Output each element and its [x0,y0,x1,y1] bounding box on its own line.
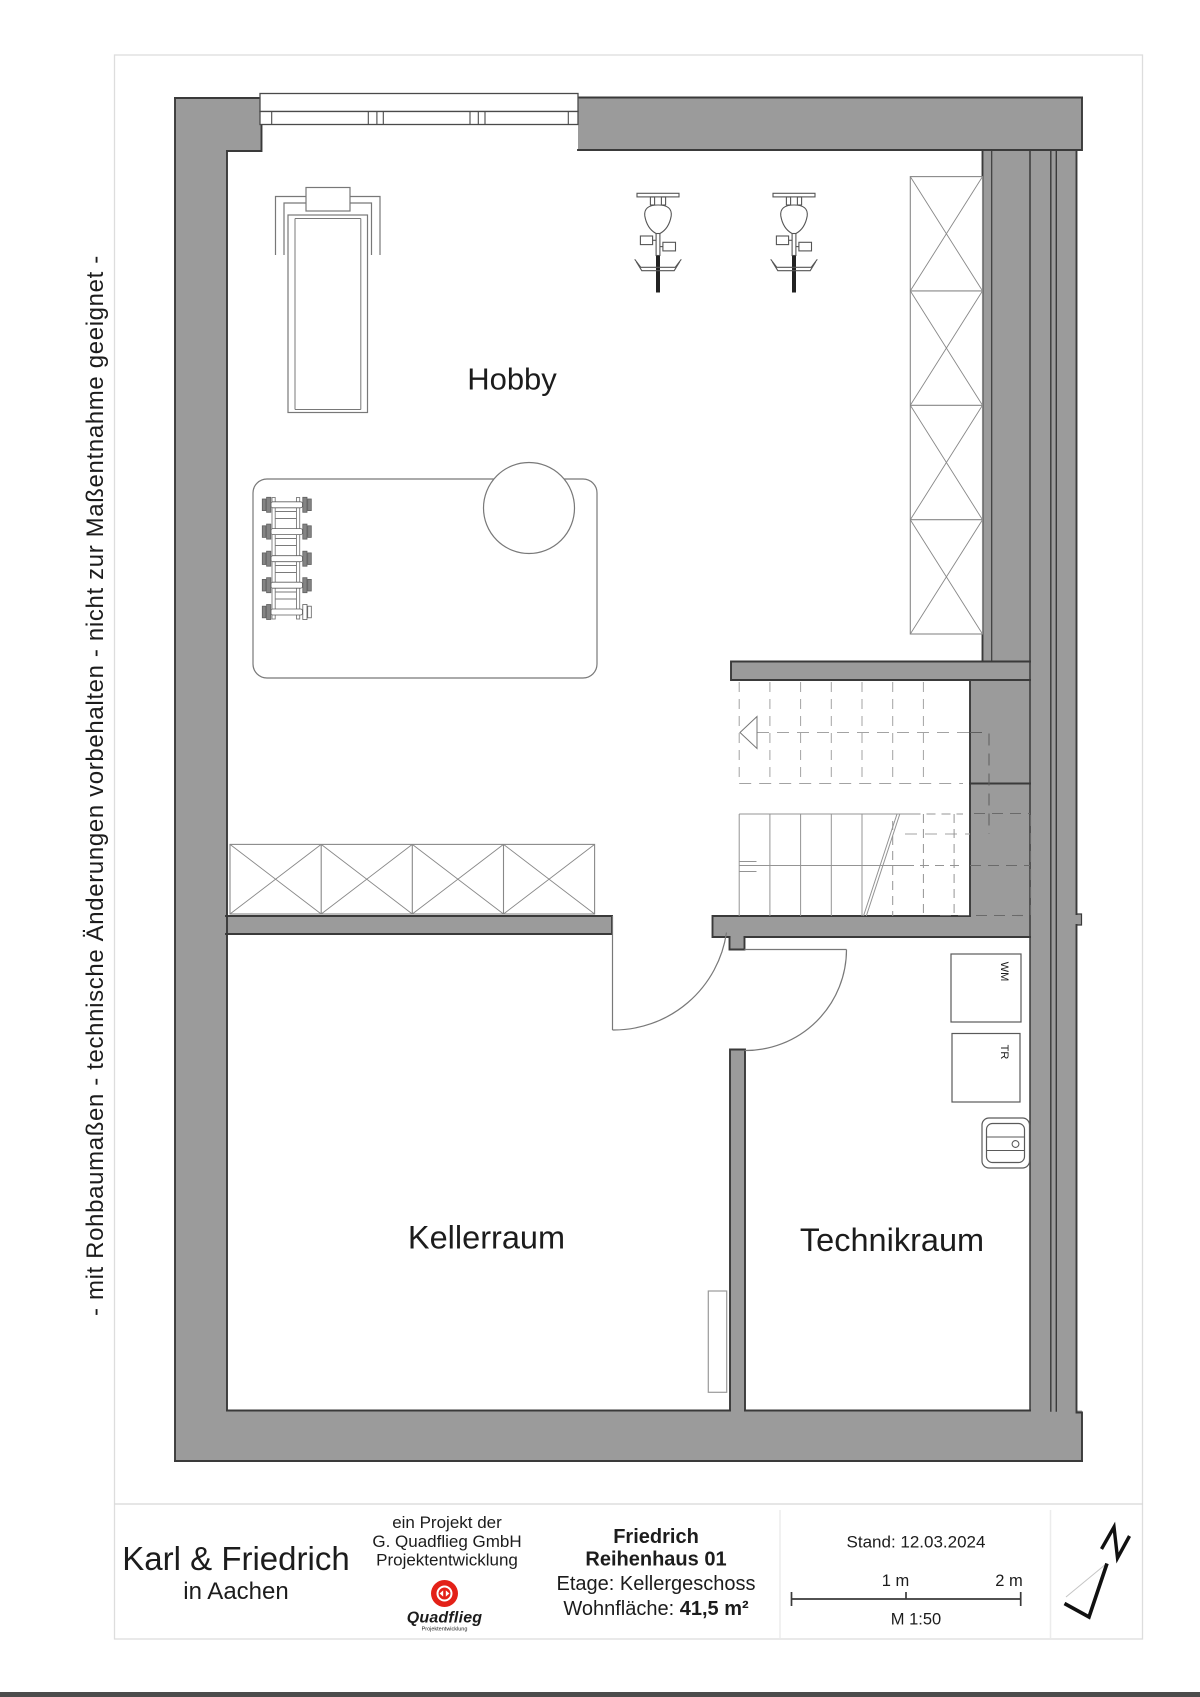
svg-text:Wohnfläche: 41,5 m²: Wohnfläche: 41,5 m² [563,1598,749,1620]
svg-text:1 m: 1 m [882,1572,910,1590]
svg-text:Reihenhaus 01: Reihenhaus 01 [585,1549,726,1571]
svg-text:Karl & Friedrich: Karl & Friedrich [122,1540,349,1577]
svg-text:Kellerraum: Kellerraum [408,1220,565,1256]
svg-text:Technikraum: Technikraum [800,1222,984,1258]
svg-text:ein Projekt der: ein Projekt der [392,1513,502,1532]
svg-text:Hobby: Hobby [467,362,557,397]
svg-text:Projektentwicklung: Projektentwicklung [376,1551,518,1570]
svg-text:2 m: 2 m [995,1572,1023,1590]
svg-text:Friedrich: Friedrich [613,1526,699,1548]
svg-text:Projektentwicklung: Projektentwicklung [422,1627,468,1633]
svg-text:in Aachen: in Aachen [183,1578,288,1605]
svg-text:WM: WM [998,962,1010,982]
svg-text:G. Quadflieg GmbH: G. Quadflieg GmbH [372,1532,521,1551]
svg-text:M 1:50: M 1:50 [891,1611,941,1629]
svg-text:TR: TR [998,1045,1010,1060]
svg-text:Quadflieg: Quadflieg [407,1610,483,1627]
svg-text:Etage: Kellergeschoss: Etage: Kellergeschoss [556,1573,755,1595]
svg-text:- mit Rohbaumaßen - technische: - mit Rohbaumaßen - technische Änderunge… [82,255,109,1316]
svg-text:Stand: 12.03.2024: Stand: 12.03.2024 [847,1533,986,1552]
